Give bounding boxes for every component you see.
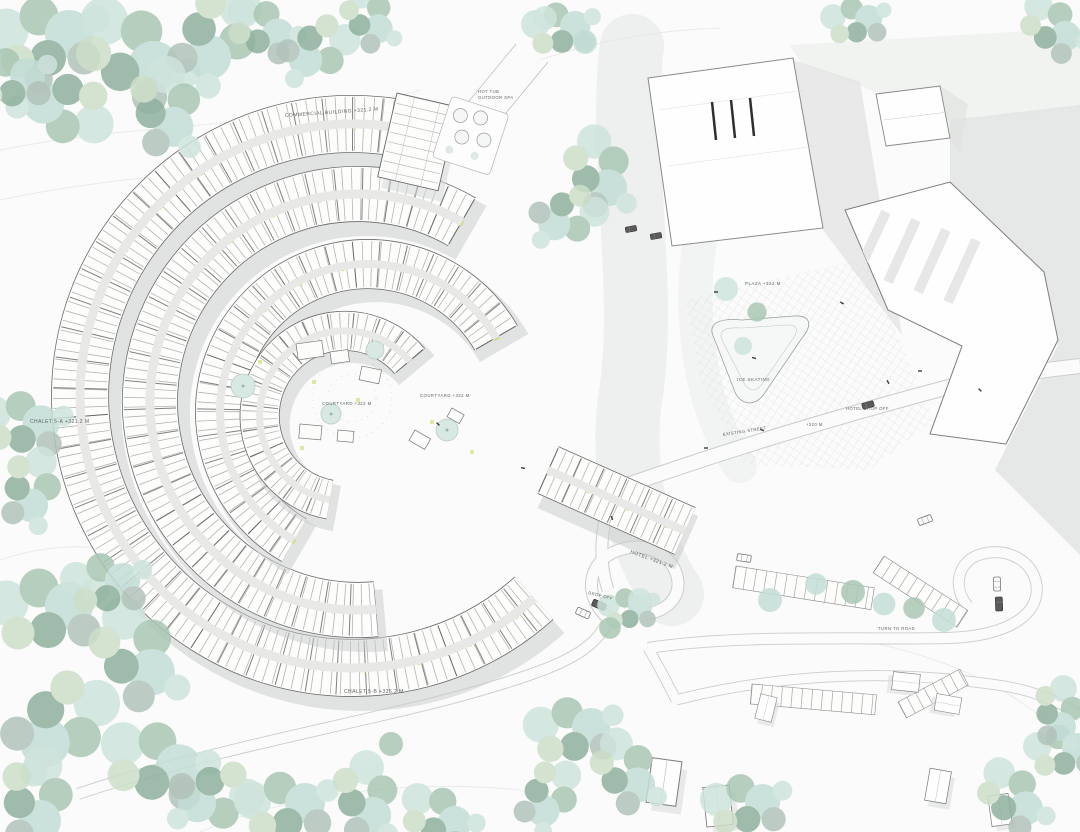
label-courtyard-west: COURTYARD +322 M <box>322 401 372 406</box>
label-turn-to-road: TURN TO ROAD <box>878 626 915 631</box>
label-plaza: PLAZA +322 M <box>745 281 781 286</box>
label-hot-tub-line2: OUTDOOR SPA <box>478 95 514 100</box>
label-level-320: +320 M <box>806 422 823 427</box>
label-courtyard-east: COURTYARD +322 M <box>420 393 470 398</box>
label-ice-skating: ICE SKATING <box>737 377 770 382</box>
site-plan-canvas: COMMERCIAL BUILDING +321.2 M HOT TUB OUT… <box>0 0 1080 832</box>
label-chalet-b: CHALET 5-B +325.2 M <box>344 689 404 695</box>
building-north <box>648 58 823 246</box>
label-hot-tub-line1: HOT TUB <box>478 89 499 94</box>
label-chalet-a: CHALET 5-A +321.2 M <box>30 419 89 425</box>
site-plan-page: COMMERCIAL BUILDING +321.2 M HOT TUB OUT… <box>0 0 1080 832</box>
label-hotel-drop-off: HOTEL DROP OFF <box>846 406 889 411</box>
